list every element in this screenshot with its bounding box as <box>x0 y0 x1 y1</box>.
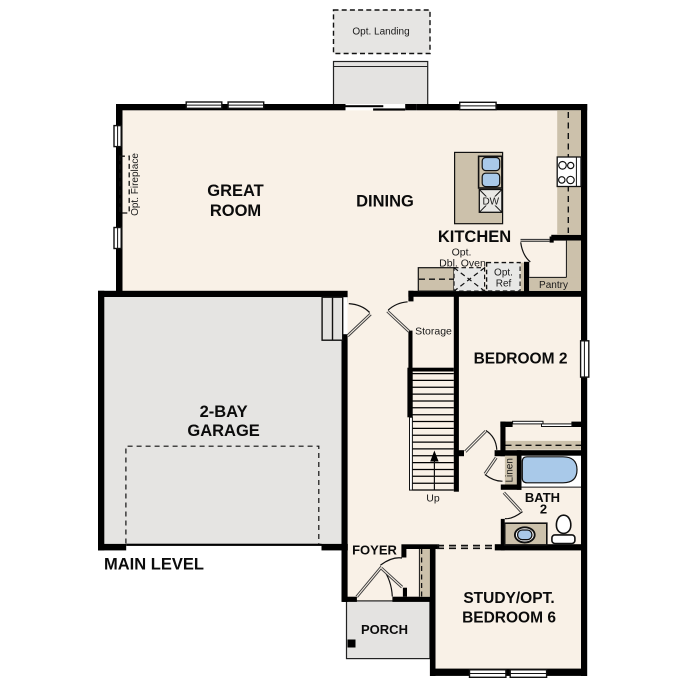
svg-text:PORCH: PORCH <box>361 622 408 637</box>
svg-text:STUDY/OPT.: STUDY/OPT. <box>463 590 554 607</box>
svg-text:Ref: Ref <box>496 279 512 290</box>
svg-text:BEDROOM 2: BEDROOM 2 <box>474 351 568 368</box>
svg-text:Linen: Linen <box>505 458 516 482</box>
svg-text:DINING: DINING <box>356 193 414 211</box>
svg-text:Opt. Fireplace: Opt. Fireplace <box>130 153 141 216</box>
svg-text:DW: DW <box>482 196 499 207</box>
svg-text:ROOM: ROOM <box>210 202 261 220</box>
svg-text:MAIN LEVEL: MAIN LEVEL <box>104 556 204 574</box>
svg-text:GARAGE: GARAGE <box>187 422 259 440</box>
svg-text:FOYER: FOYER <box>352 543 397 558</box>
svg-text:2-BAY: 2-BAY <box>200 403 248 421</box>
svg-text:Opt.: Opt. <box>494 268 513 279</box>
svg-text:2: 2 <box>540 502 547 517</box>
svg-text:Pantry: Pantry <box>539 280 568 291</box>
svg-text:Opt. Landing: Opt. Landing <box>352 27 409 38</box>
svg-text:Storage: Storage <box>415 326 452 338</box>
svg-text:GREAT: GREAT <box>207 182 264 200</box>
svg-text:KITCHEN: KITCHEN <box>438 228 511 246</box>
svg-text:Up: Up <box>426 493 440 505</box>
svg-text:Dbl. Oven: Dbl. Oven <box>439 258 486 270</box>
svg-text:BEDROOM 6: BEDROOM 6 <box>462 610 556 627</box>
